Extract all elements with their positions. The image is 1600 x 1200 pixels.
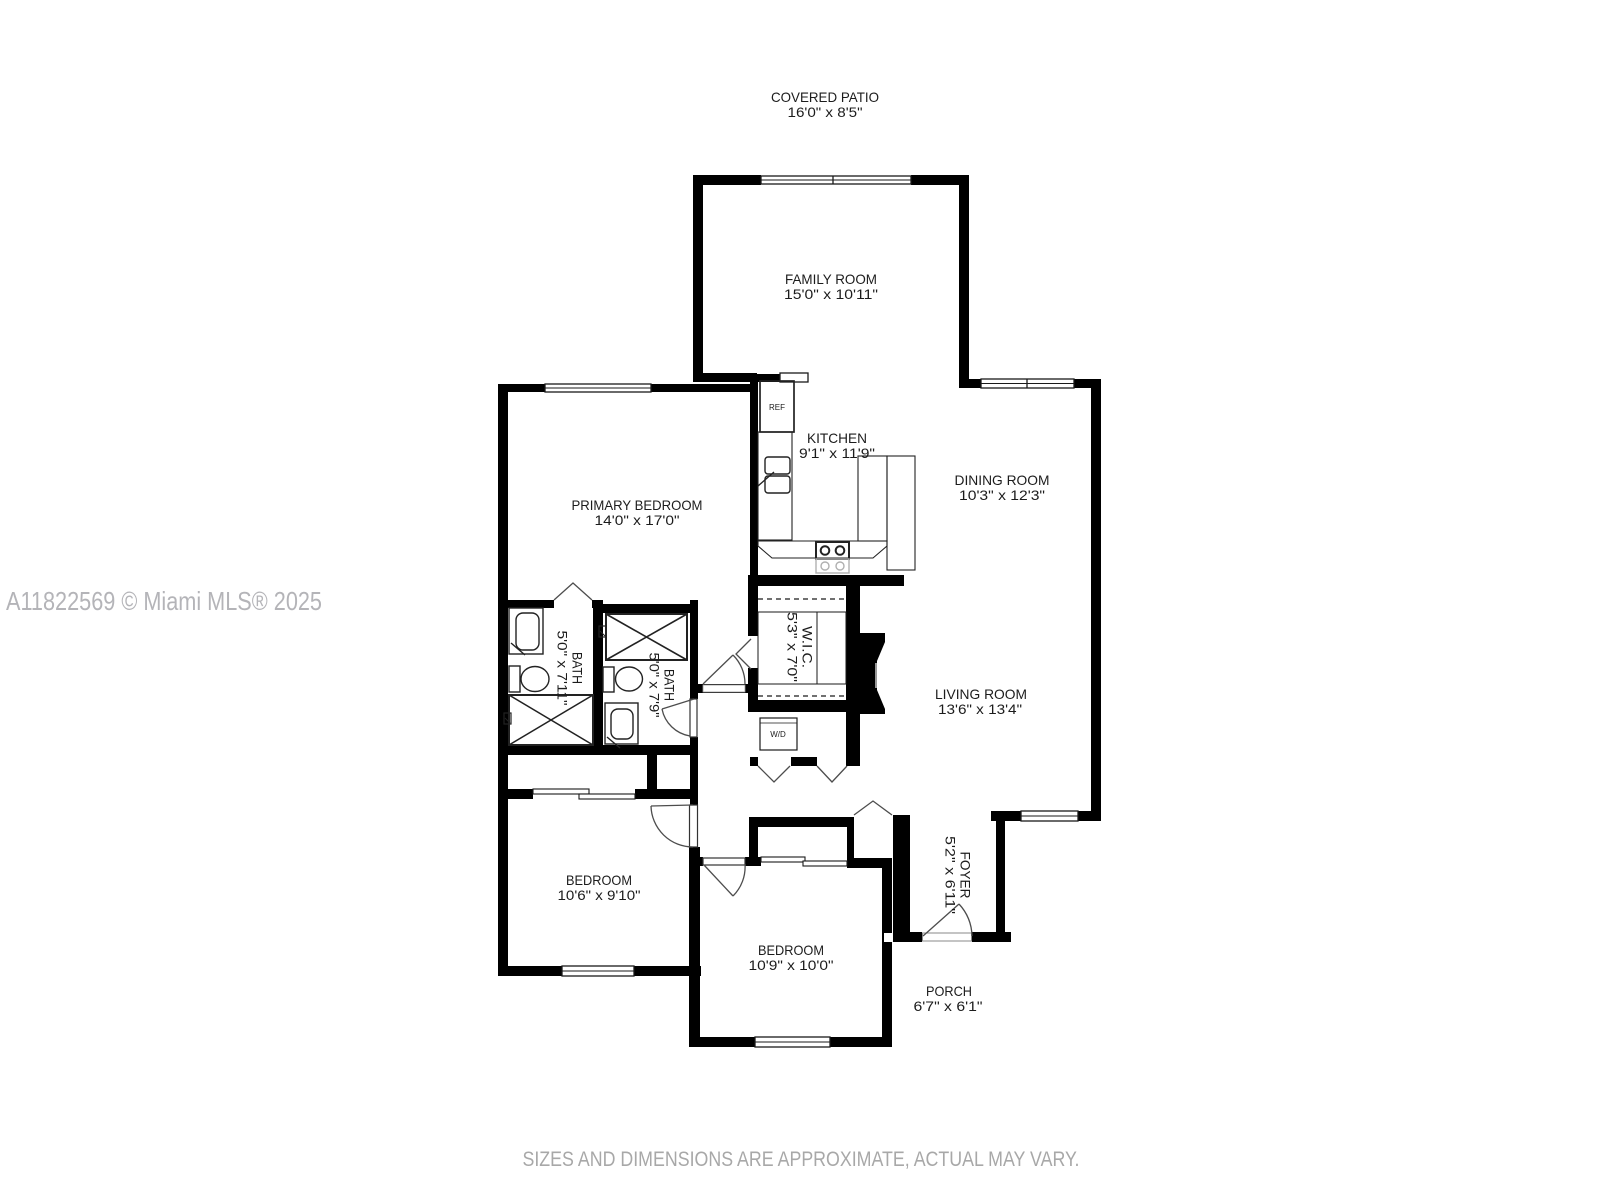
svg-text:KITCHEN: KITCHEN xyxy=(807,430,867,446)
svg-text:5'3" x 7'0": 5'3" x 7'0" xyxy=(785,612,801,682)
svg-text:LIVING ROOM: LIVING ROOM xyxy=(935,686,1027,702)
svg-text:DINING ROOM: DINING ROOM xyxy=(955,472,1050,488)
svg-text:W.I.C.: W.I.C. xyxy=(800,626,816,668)
svg-text:REF: REF xyxy=(769,403,785,412)
svg-text:BEDROOM: BEDROOM xyxy=(566,872,632,888)
svg-text:FAMILY ROOM: FAMILY ROOM xyxy=(785,271,877,287)
svg-text:5'0" x 7'11": 5'0" x 7'11" xyxy=(555,631,571,706)
svg-text:W/D: W/D xyxy=(770,730,786,739)
svg-text:FOYER: FOYER xyxy=(958,852,974,899)
svg-text:9'1" x 11'9": 9'1" x 11'9" xyxy=(799,445,875,461)
svg-text:6'7" x 6'1": 6'7" x 6'1" xyxy=(914,998,983,1014)
svg-text:14'0" x 17'0": 14'0" x 17'0" xyxy=(595,512,680,528)
svg-text:COVERED PATIO: COVERED PATIO xyxy=(771,89,879,105)
svg-text:5'2" x 6'11": 5'2" x 6'11" xyxy=(943,836,959,914)
svg-text:10'9" x 10'0": 10'9" x 10'0" xyxy=(749,957,834,973)
svg-text:A11822569 © Miami MLS® 2025: A11822569 © Miami MLS® 2025 xyxy=(6,586,322,616)
svg-text:15'0" x 10'11": 15'0" x 10'11" xyxy=(784,286,878,302)
svg-text:BEDROOM: BEDROOM xyxy=(758,942,824,958)
svg-text:10'3" x 12'3": 10'3" x 12'3" xyxy=(959,487,1045,503)
svg-text:13'6" x 13'4": 13'6" x 13'4" xyxy=(938,701,1022,717)
svg-text:PORCH: PORCH xyxy=(926,983,972,999)
svg-text:10'6" x 9'10": 10'6" x 9'10" xyxy=(558,887,641,903)
svg-text:SIZES AND DIMENSIONS ARE APPRO: SIZES AND DIMENSIONS ARE APPROXIMATE, AC… xyxy=(523,1148,1080,1171)
svg-text:16'0" x 8'5": 16'0" x 8'5" xyxy=(788,104,863,120)
svg-text:PRIMARY BEDROOM: PRIMARY BEDROOM xyxy=(572,497,703,513)
svg-text:BATH: BATH xyxy=(662,669,678,701)
svg-text:BATH: BATH xyxy=(570,652,586,684)
svg-text:5'0" x 7'9": 5'0" x 7'9" xyxy=(647,653,663,718)
